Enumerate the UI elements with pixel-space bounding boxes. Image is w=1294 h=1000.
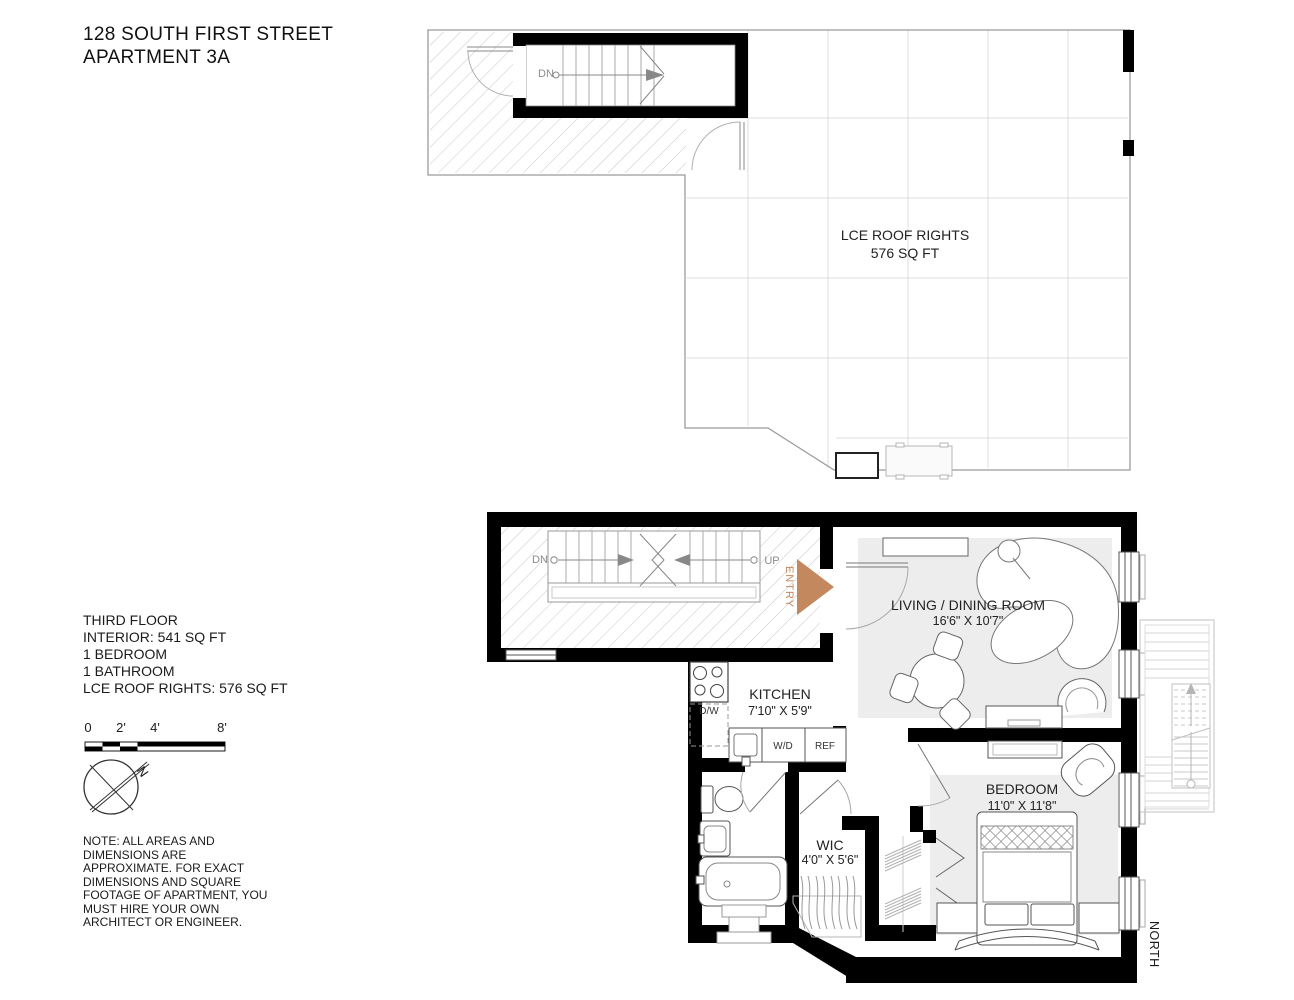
- scale-bar: [85, 742, 225, 751]
- dishwasher-label: D/W: [699, 706, 718, 717]
- living-room-dims: 16'6" X 10'7": [933, 614, 1004, 628]
- wic-name: WIC: [816, 837, 843, 853]
- roof-mechanical-unit: [886, 443, 952, 479]
- entry-label: ENTRY: [783, 566, 795, 608]
- bathtub: [696, 857, 787, 906]
- window: [1119, 650, 1145, 698]
- roof-wall-tick-mid: [1123, 140, 1134, 156]
- wic-hangers: [801, 876, 857, 929]
- page-title-line1: 128 SOUTH FIRST STREET: [83, 24, 333, 46]
- kitchen-dims: 7'10" X 5'9": [748, 704, 812, 718]
- toilet: [701, 786, 743, 813]
- roof-wall-tick-top: [1123, 30, 1134, 72]
- kitchen-sink: [729, 728, 762, 766]
- stair-up-label: UP: [764, 555, 779, 567]
- note-line: NOTE: ALL AREAS AND: [83, 835, 267, 849]
- nightstand: [937, 903, 977, 933]
- note-line: FOOTAGE OF APARTMENT, YOU: [83, 889, 267, 903]
- floor-info-line: INTERIOR: 541 SQ FT: [83, 629, 288, 646]
- stove: [690, 662, 728, 702]
- roof-plan: [428, 30, 1134, 479]
- note-line: DIMENSIONS AND SQUARE: [83, 876, 267, 890]
- fire-escape: [1140, 620, 1214, 812]
- floor-info-line: THIRD FLOOR: [83, 612, 288, 629]
- north-label: NORTH: [1147, 921, 1161, 968]
- refrigerator-label: REF: [815, 741, 835, 752]
- interior-stair: [548, 531, 760, 602]
- roof-stair-dn-label: DN: [538, 68, 554, 80]
- living-room-name: LIVING / DINING ROOM: [891, 597, 1045, 613]
- floor-info-block: THIRD FLOOR INTERIOR: 541 SQ FT 1 BEDROO…: [83, 612, 288, 697]
- wic-dims: 4'0" X 5'6": [802, 853, 859, 867]
- bedroom-dims: 11'0" X 11'8": [988, 799, 1057, 813]
- chimney: [717, 905, 771, 943]
- scale-tick-4: 4': [150, 720, 160, 735]
- roof-hatch-left: [430, 32, 513, 173]
- console-shelf: [883, 538, 968, 556]
- roof-area-value: 576 SQ FT: [871, 245, 939, 261]
- scale-tick-2: 2': [116, 720, 126, 735]
- window: [1119, 877, 1145, 930]
- nightstand: [1079, 903, 1119, 933]
- roof-hatch-bottom: [513, 118, 686, 173]
- bedroom-name: BEDROOM: [986, 781, 1058, 797]
- roof-area-label: LCE ROOF RIGHTS: [841, 227, 969, 243]
- floor-info-line: LCE ROOF RIGHTS: 576 SQ FT: [83, 680, 288, 697]
- bathroom-fixtures: [696, 772, 787, 943]
- note-line: ARCHITECT OR ENGINEER.: [83, 916, 267, 930]
- scale-tick-8: 8': [217, 720, 227, 735]
- note-line: DIMENSIONS ARE: [83, 849, 267, 863]
- note-block: NOTE: ALL AREAS AND DIMENSIONS ARE APPRO…: [83, 835, 267, 930]
- stair-dn-label: DN: [532, 554, 548, 566]
- note-line: APPROXIMATE. FOR EXACT: [83, 862, 267, 876]
- floor-info-line: 1 BEDROOM: [83, 646, 288, 663]
- window: [1119, 552, 1145, 602]
- scale-tick-0: 0: [84, 720, 91, 735]
- note-line: MUST HIRE YOUR OWN: [83, 903, 267, 917]
- bed: [977, 812, 1077, 945]
- roof-hatch-skylight: [836, 453, 878, 478]
- window: [1119, 773, 1145, 827]
- floor-info-line: 1 BATHROOM: [83, 663, 288, 680]
- dresser: [988, 741, 1062, 758]
- wic-door: [800, 780, 851, 814]
- floorplan-page: 128 SOUTH FIRST STREET APARTMENT 3A LCE …: [0, 0, 1294, 1000]
- kitchen-name: KITCHEN: [749, 686, 810, 702]
- bathroom-door: [741, 772, 786, 812]
- page-title-line2: APARTMENT 3A: [83, 47, 230, 69]
- window: [506, 650, 556, 660]
- washer-dryer-label: W/D: [773, 741, 792, 752]
- bathroom-sink: [698, 821, 730, 856]
- roof-access-door: [692, 122, 744, 170]
- tv-console: [986, 706, 1062, 728]
- third-floor-plan: [487, 512, 1214, 983]
